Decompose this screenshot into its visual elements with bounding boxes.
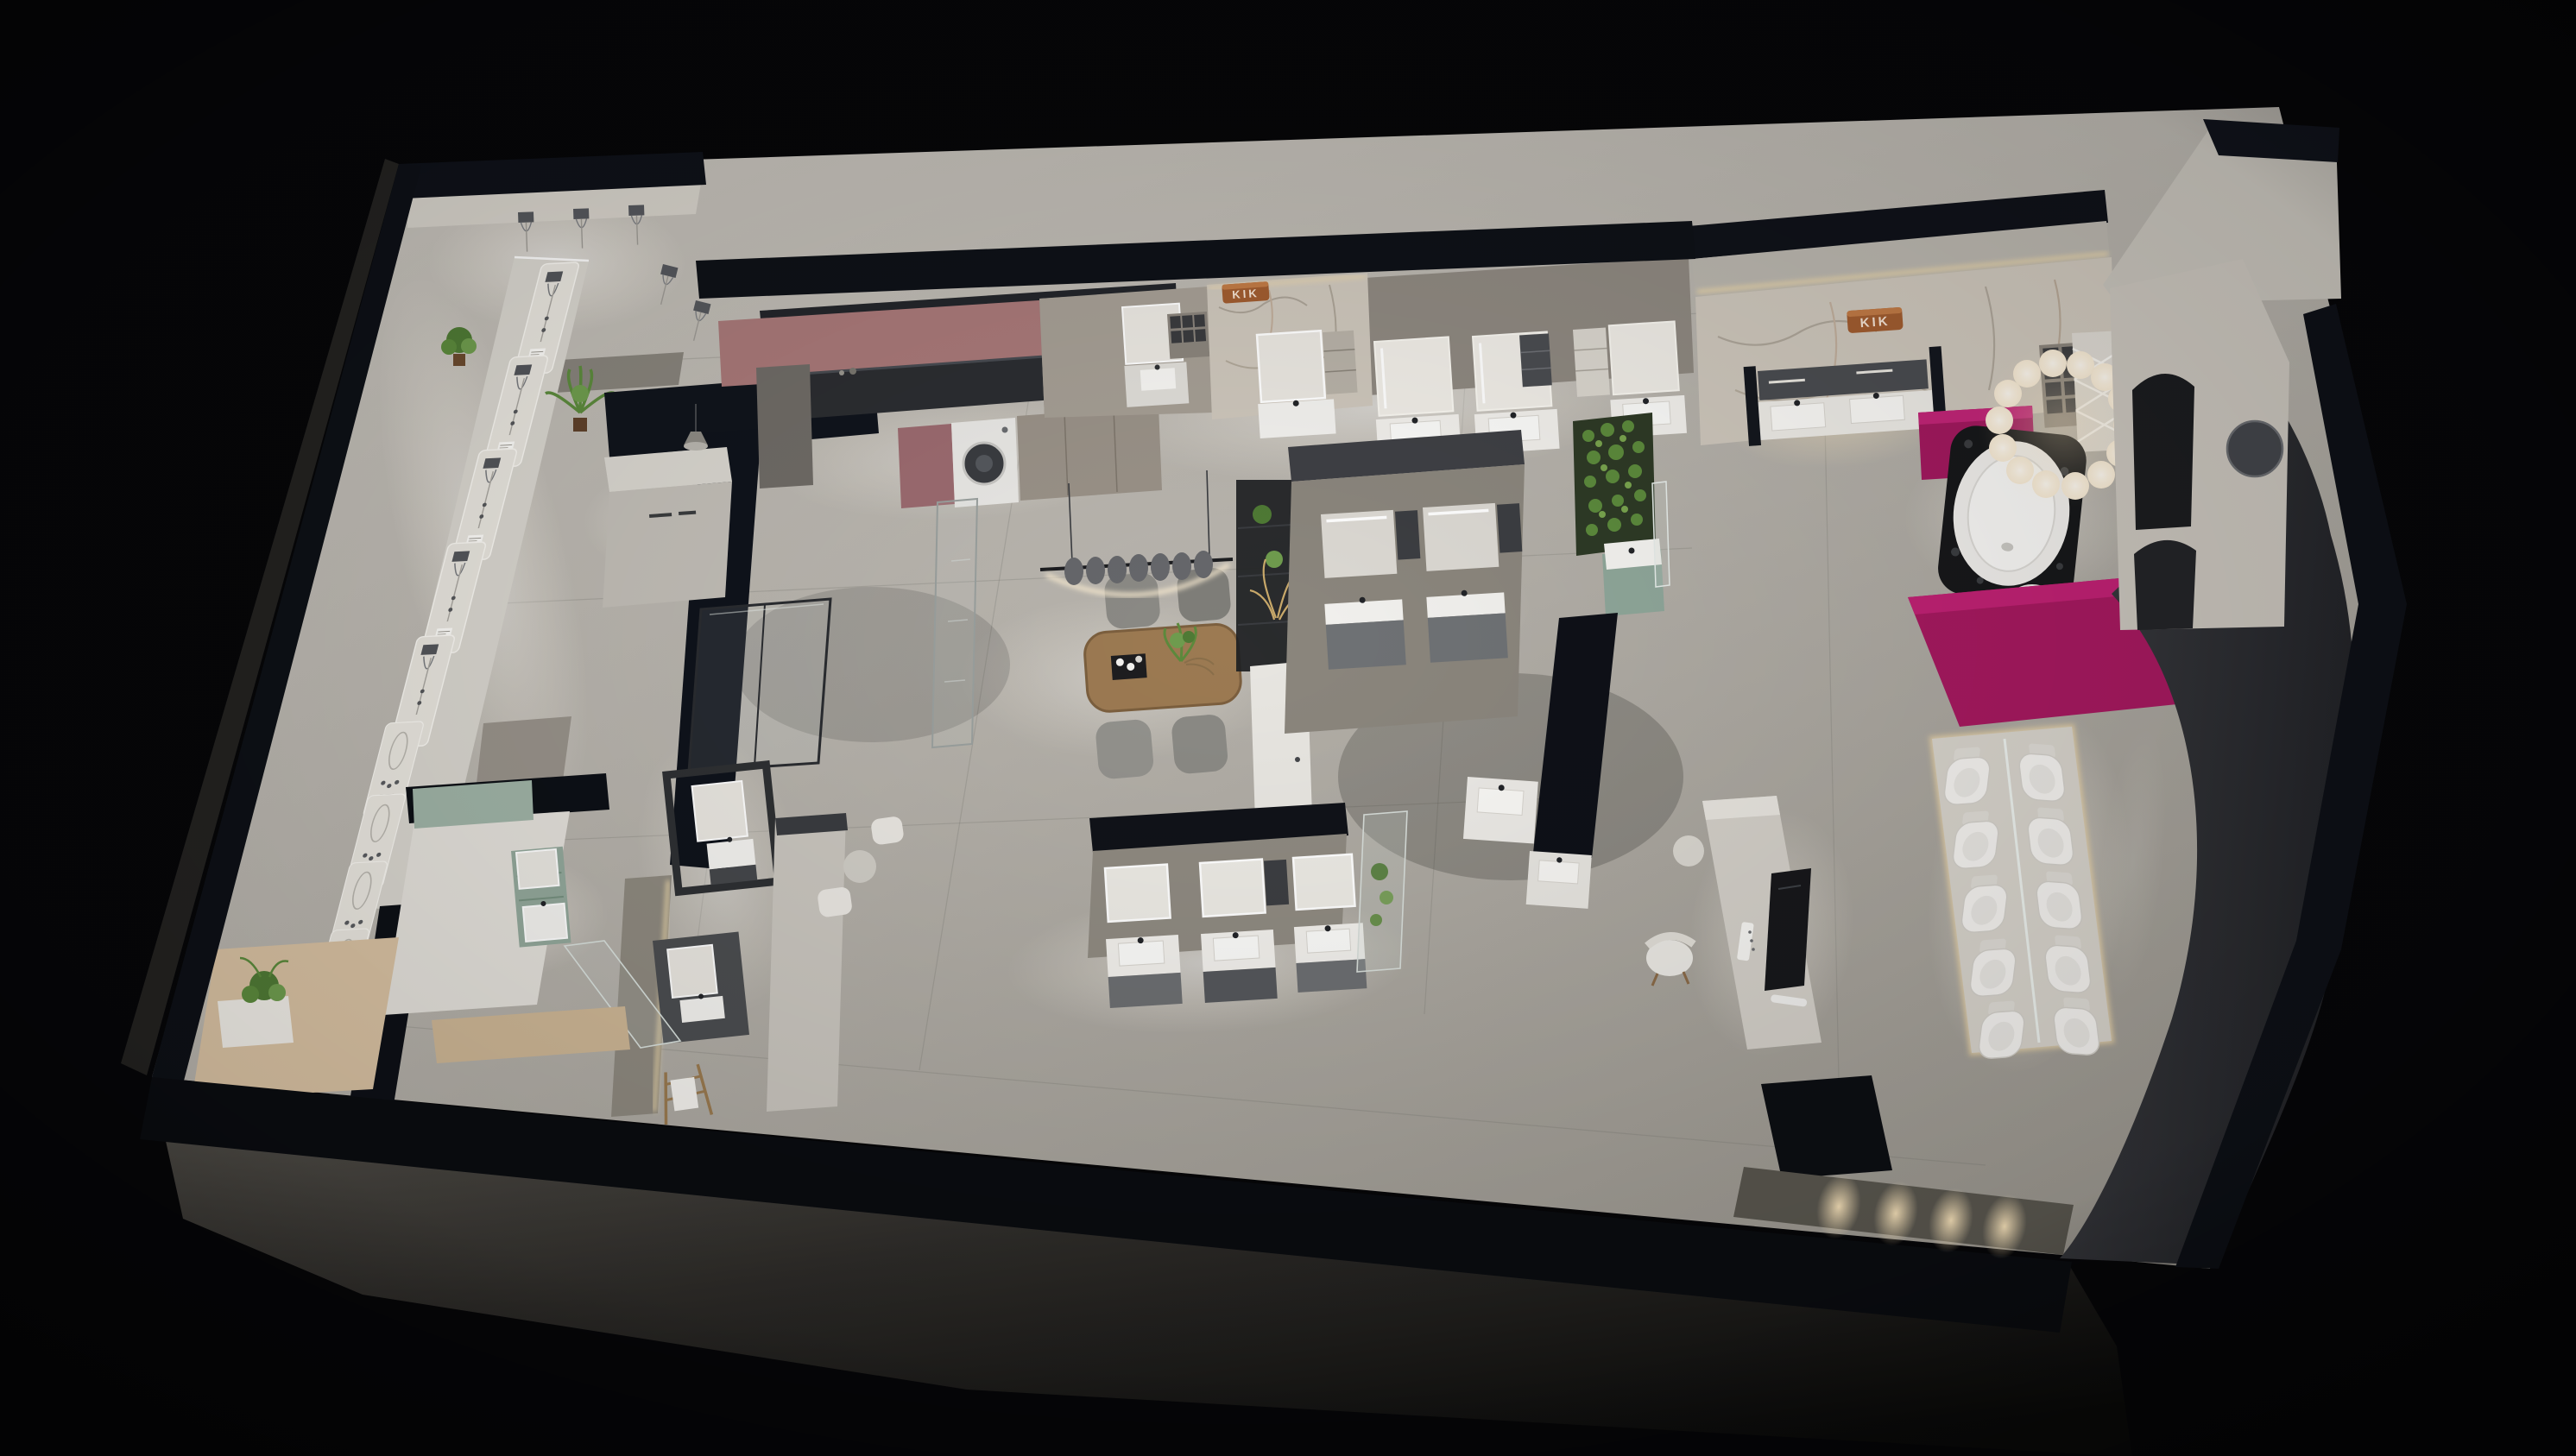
showroom-render: KIK: [0, 0, 2576, 1456]
vignette-overlay: [0, 0, 2576, 1456]
